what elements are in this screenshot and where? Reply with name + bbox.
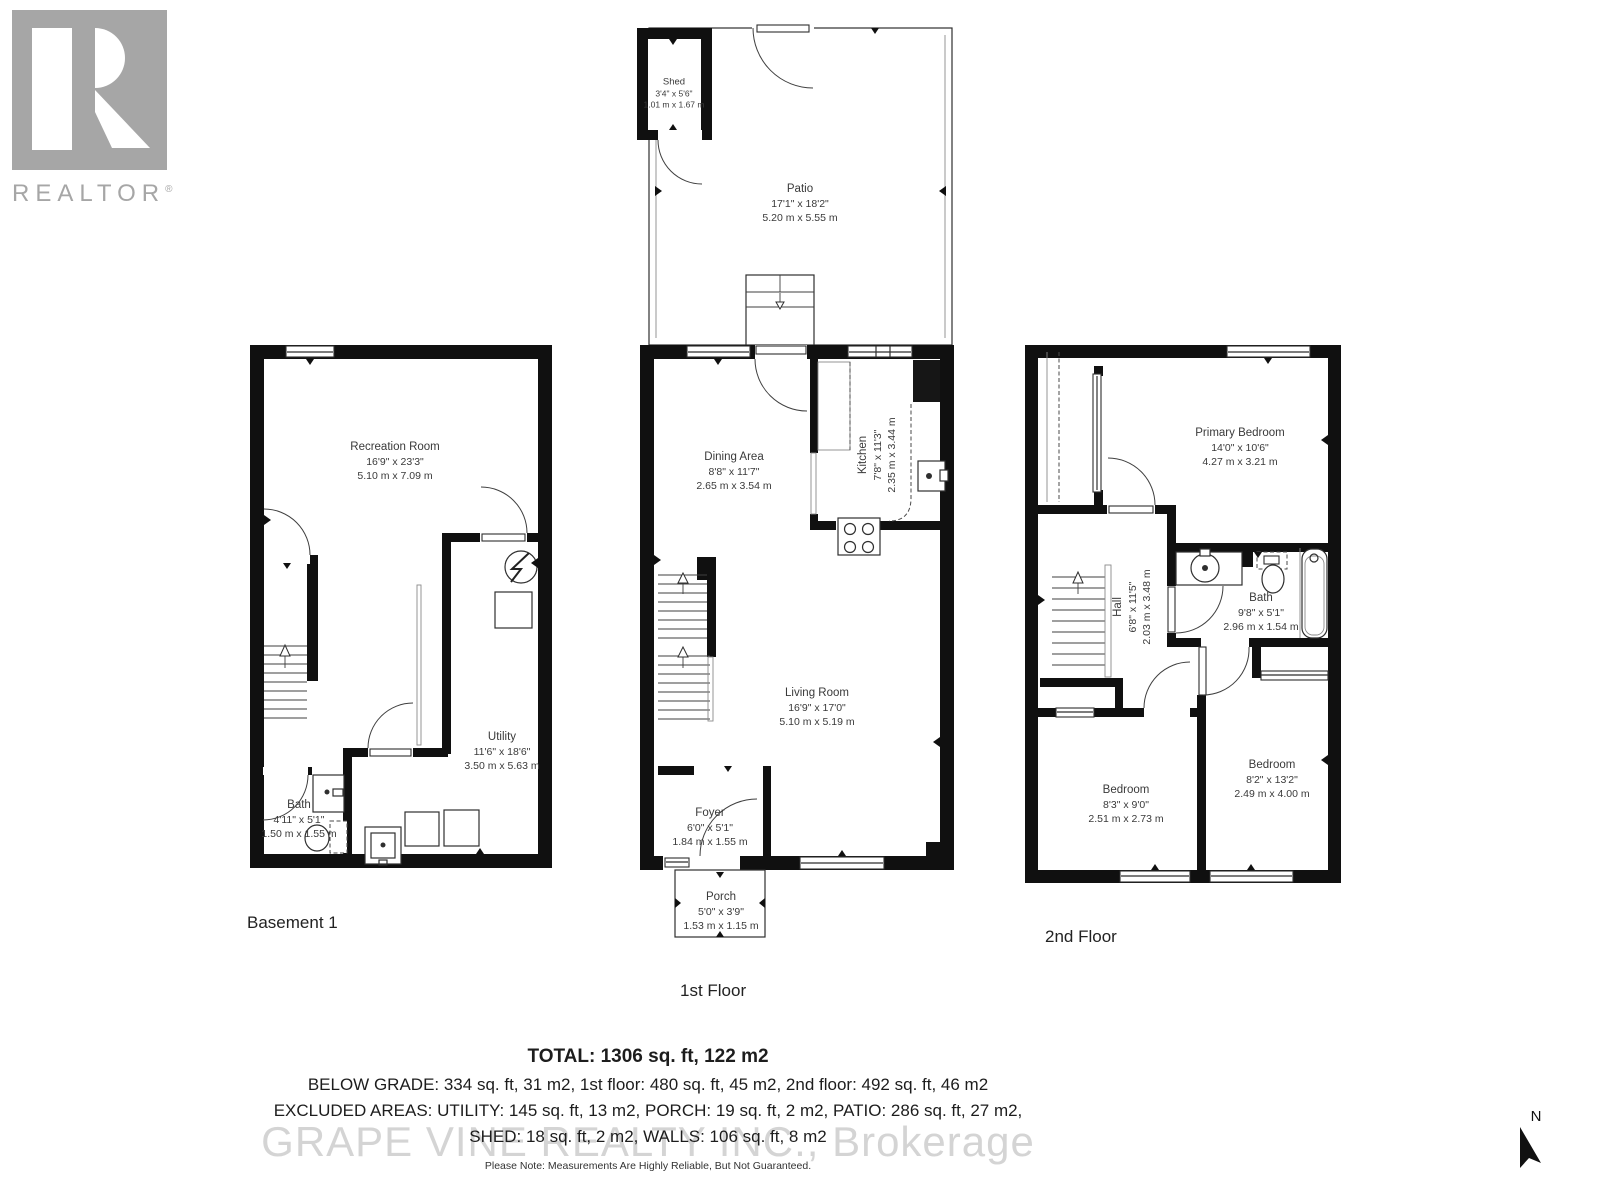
first-floor-plan [637,25,954,937]
registered-mark: ® [165,184,172,195]
laundry-sink-icon [365,827,401,865]
dryer-icon [444,810,479,846]
caption-second-floor: 2nd Floor [1045,927,1117,947]
room-label-bath-second: Bath 9'8" x 5'1" 2.96 m x 1.54 m [1223,592,1298,634]
room-label-bath-basement: Bath 4'11" x 5'1" 1.50 m x 1.55 m [261,799,336,841]
room-label-patio: Patio 17'1" x 18'2" 5.20 m x 5.55 m [762,183,837,225]
realtor-logo [12,10,172,175]
room-label-recreation: Recreation Room 16'9" x 23'3" 5.10 m x 7… [350,441,439,483]
first-floor-walls [640,345,954,870]
bath-toilet-icon [1257,552,1287,593]
bathtub-icon [1300,548,1327,638]
kitchen-sink-icon [918,461,948,491]
realtor-r-icon [12,10,167,170]
caption-basement: Basement 1 [247,913,338,933]
first-floor-doors [663,345,807,870]
electrical-panel-icon [495,551,537,628]
patio-steps-icon [746,275,814,345]
area-summary: TOTAL: 1306 sq. ft, 122 m2 BELOW GRADE: … [148,1046,1148,1153]
room-label-primary: Primary Bedroom 14'0" x 10'6" 4.27 m x 3… [1195,427,1284,469]
stove-icon [838,518,880,555]
basement-plan [250,345,552,868]
floorplan-page: REALTOR® GRAPE VINE REALTY INC., Brokera… [0,0,1600,1200]
caption-first-floor: 1st Floor [680,981,746,1001]
bath-vanity-sink-icon [1176,549,1242,585]
total-area: TOTAL: 1306 sq. ft, 122 m2 [148,1046,1148,1068]
excluded-areas-line2: SHED: 18 sq. ft, 2 m2, WALLS: 106 sq. ft… [148,1127,1148,1147]
excluded-areas-line1: EXCLUDED AREAS: UTILITY: 145 sq. ft, 13 … [148,1101,1148,1121]
room-label-shed: Shed 3'4" x 5'6" 1.01 m x 1.67 m [644,76,705,109]
compass-north-label: N [1524,1108,1548,1125]
basement-window [286,346,334,365]
basement-stairs-icon [264,585,421,745]
second-floor-stairs-icon [1052,565,1111,677]
room-label-living: Living Room 16'9" x 17'0" 5.10 m x 5.19 … [779,687,854,729]
disclaimer-note: Please Note: Measurements Are Highly Rel… [148,1160,1148,1172]
room-label-dining: Dining Area 8'8" x 11'7" 2.65 m x 3.54 m [696,451,771,493]
washer-icon [405,812,439,846]
room-label-kitchen: Kitchen 7'8" x 11'3" 2.35 m x 3.44 m [857,417,899,492]
floorplan-drawing [0,0,1600,1200]
room-label-foyer: Foyer 6'0" x 5'1" 1.84 m x 1.55 m [672,807,747,849]
room-label-bedroom-large: Bedroom 8'2" x 13'2" 2.49 m x 4.00 m [1234,759,1309,801]
room-label-bedroom-small: Bedroom 8'3" x 9'0" 2.51 m x 2.73 m [1088,784,1163,826]
realtor-logo-text: REALTOR® [12,180,182,208]
room-label-porch: Porch 5'0" x 3'9" 1.53 m x 1.15 m [683,891,758,933]
room-label-hall: Hall 6'8" x 11'5" 2.03 m x 3.48 m [1112,569,1154,644]
first-floor-stairs-icon [658,573,713,721]
below-grade-line: BELOW GRADE: 334 sq. ft, 31 m2, 1st floo… [148,1075,1148,1095]
room-label-utility: Utility 11'6" x 18'6" 3.50 m x 5.63 m [464,731,539,773]
primary-closet [1047,352,1101,502]
fridge-icon [913,360,940,402]
compass-north-icon [1520,1127,1541,1168]
